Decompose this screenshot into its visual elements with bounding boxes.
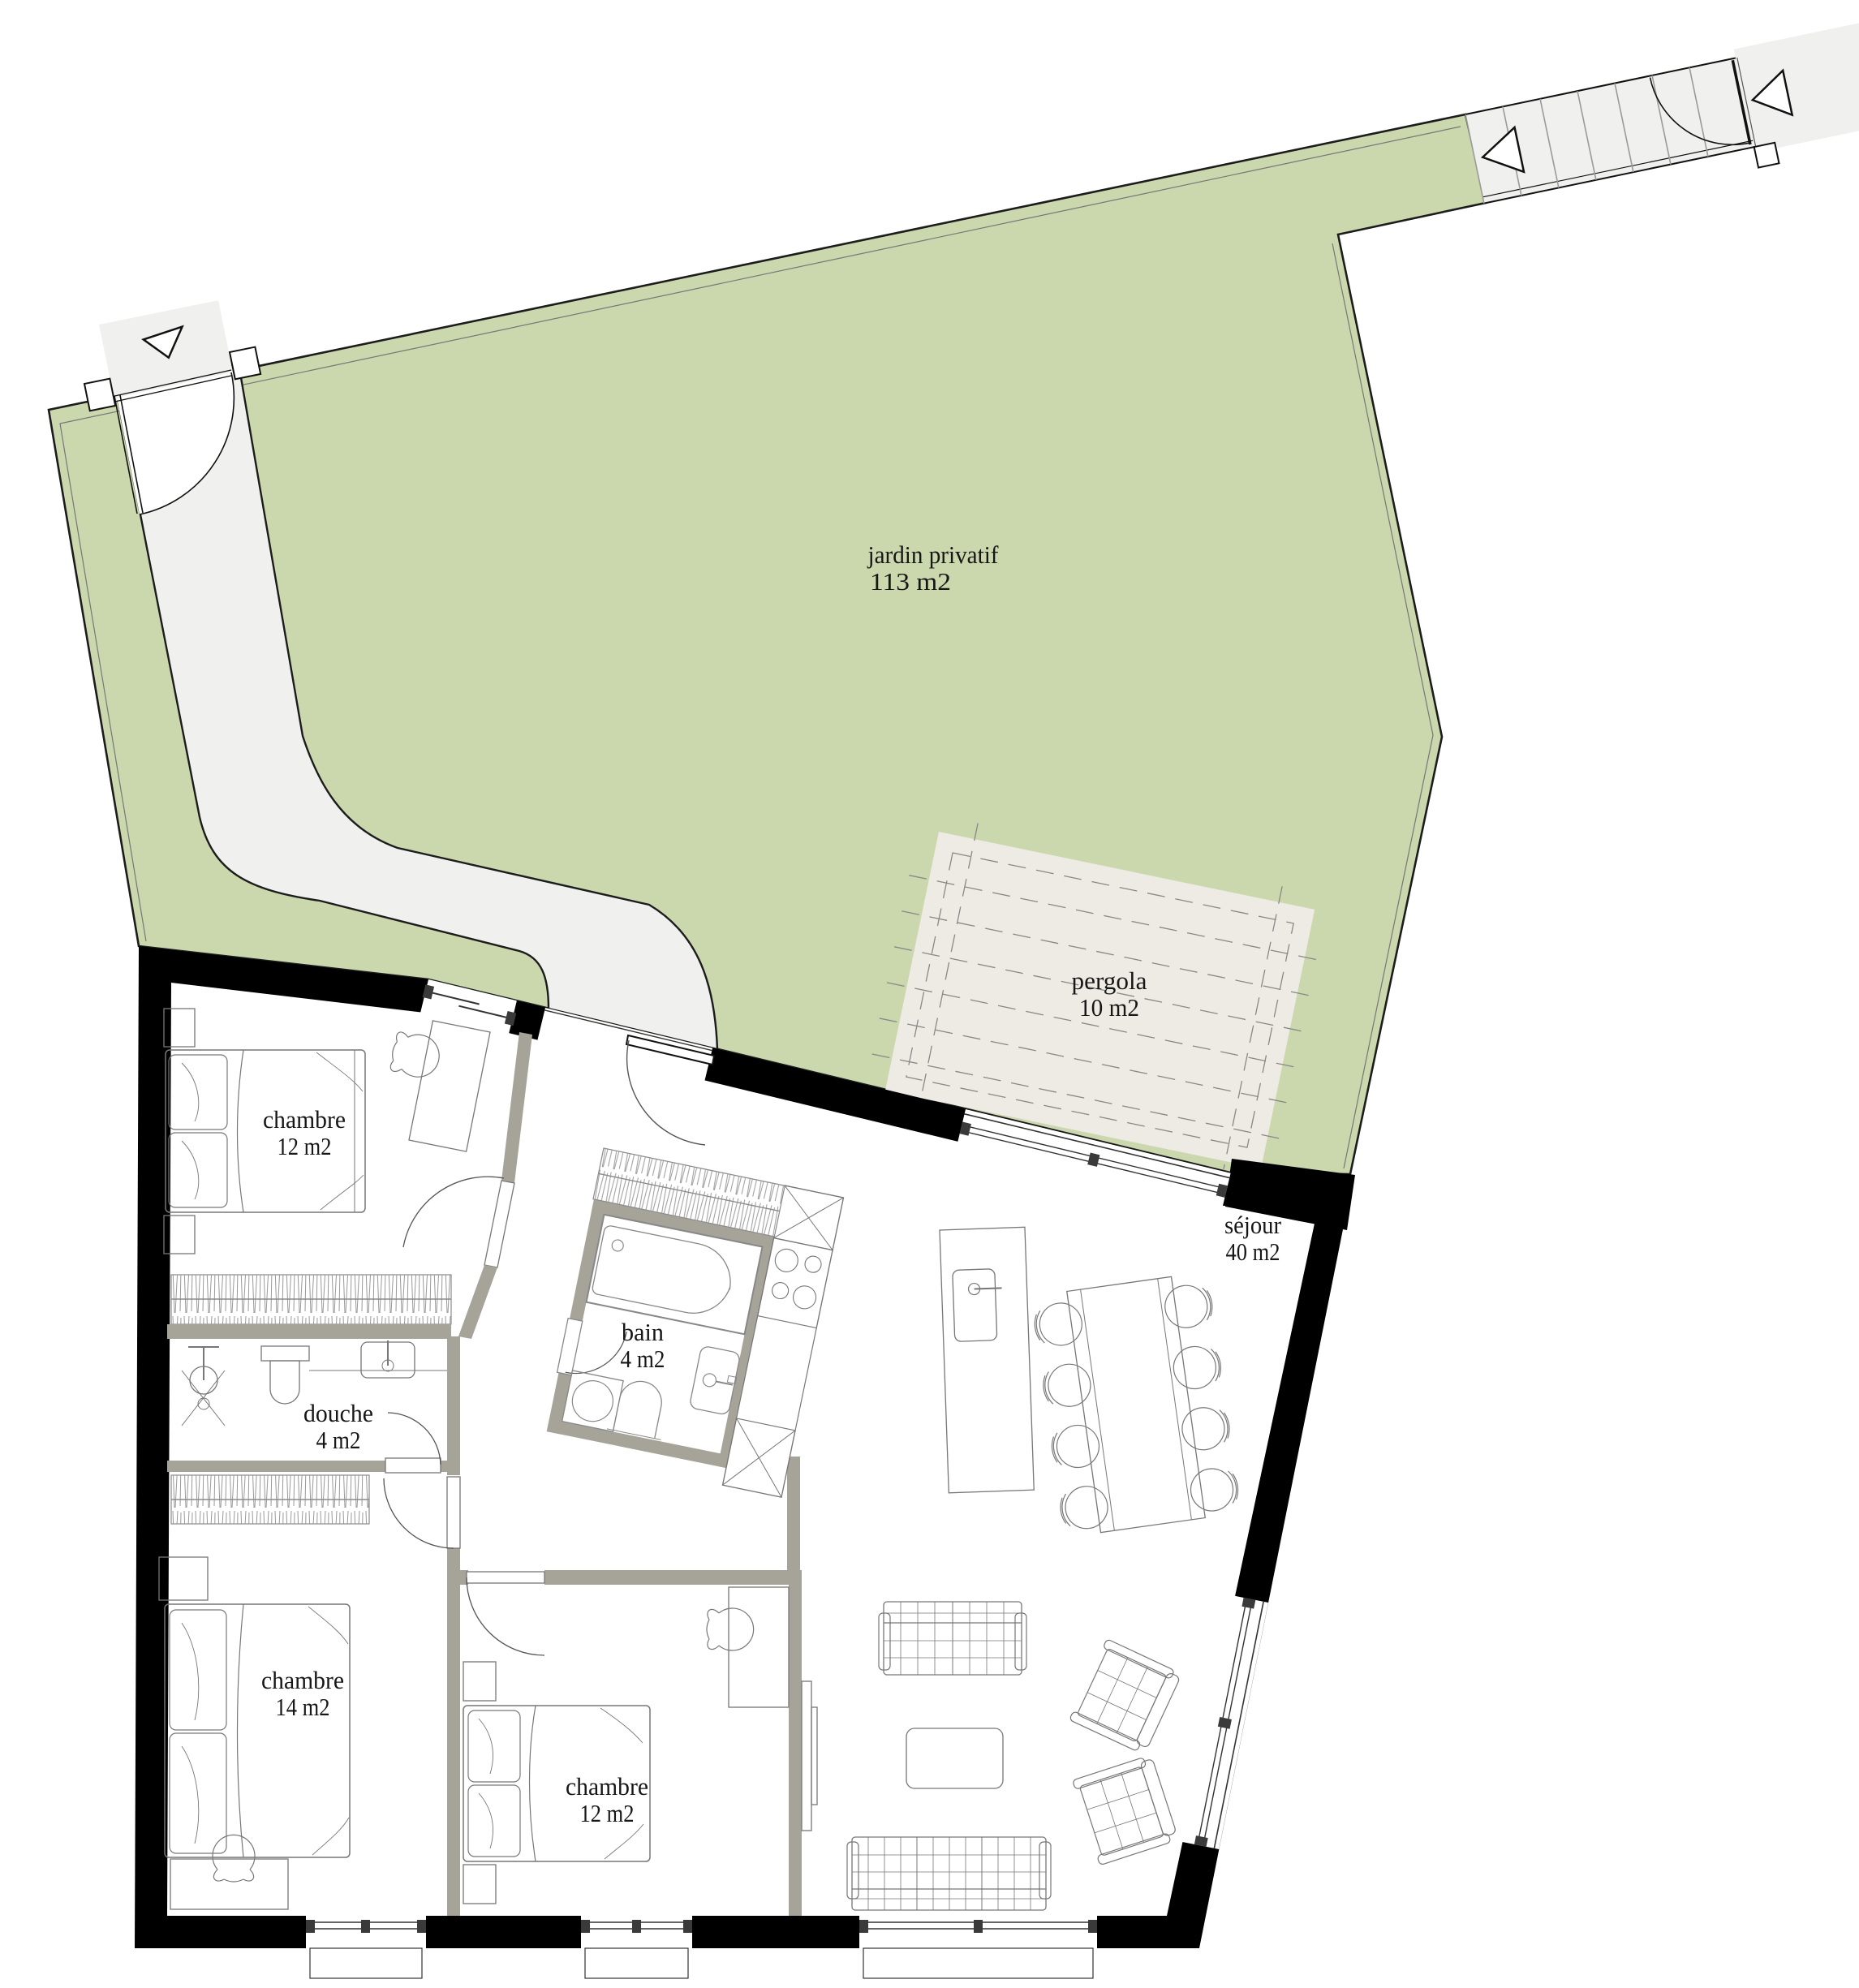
svg-text:chambre: chambre (566, 1772, 648, 1801)
svg-text:12 m2: 12 m2 (278, 1132, 332, 1160)
svg-text:chambre: chambre (263, 1105, 346, 1134)
svg-text:40 m2: 40 m2 (1226, 1237, 1280, 1266)
svg-text:jardin privatif: jardin privatif (867, 540, 1000, 569)
svg-text:14 m2: 14 m2 (276, 1693, 330, 1721)
svg-text:chambre: chambre (261, 1666, 344, 1694)
svg-text:séjour: séjour (1224, 1211, 1282, 1239)
svg-text:4 m2: 4 m2 (621, 1345, 665, 1373)
svg-text:12 m2: 12 m2 (580, 1799, 635, 1827)
svg-text:bain: bain (622, 1318, 664, 1346)
svg-text:4 m2: 4 m2 (316, 1426, 361, 1454)
svg-text:douche: douche (303, 1399, 373, 1427)
svg-text:10 m2: 10 m2 (1079, 993, 1139, 1022)
svg-text:pergola: pergola (1072, 966, 1147, 995)
svg-text:113 m2: 113 m2 (870, 567, 951, 596)
